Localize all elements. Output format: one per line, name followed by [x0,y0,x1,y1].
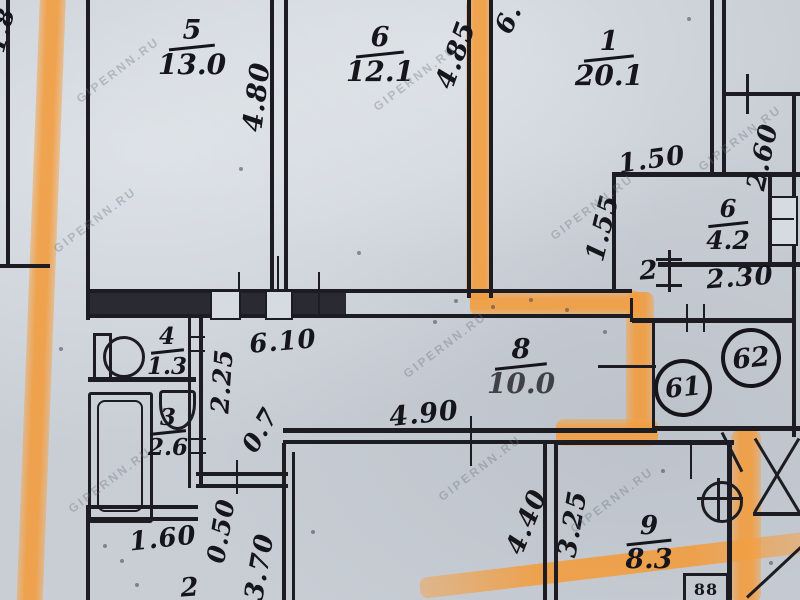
floor-plan: 88 5 13.0 6 12.1 1 20.1 6 4.2 8 10.0 9 8… [0,0,800,600]
wall-segment [0,264,50,268]
dimension-label: 2.30 [705,261,774,296]
highlight-corridor-wall [470,290,640,316]
room-number: 1 [600,28,619,55]
room-area: 8.3 [626,546,673,573]
stove-icon: 88 [683,573,729,600]
wall-segment [558,440,734,445]
wall-segment [489,0,493,298]
window-tick [746,74,749,114]
wall-segment [282,443,286,600]
vent-cross-v [717,478,720,520]
room-label-5: 5 13.0 [158,17,226,79]
dimension-label: 6. [489,0,529,39]
wall-segment [284,0,288,293]
room-number: 8 [512,336,531,363]
room-number: 4 [159,325,175,348]
window-tick [690,445,692,479]
room-area: 1.3 [147,355,187,378]
dimension-tick [470,416,472,466]
room-number: 3 [160,406,176,429]
wall-segment [652,426,800,431]
wall-segment [270,0,274,293]
room-label-9: 9 8.3 [626,513,673,573]
wall-segment [196,484,288,488]
wall-segment [725,92,800,96]
vent-cross-h [697,497,743,500]
wall-segment [652,318,655,430]
room-number: 9 [640,513,658,539]
door-tick [188,438,206,440]
vent-shaft-icon [701,481,743,523]
wall-segment [86,289,632,293]
wall-segment [630,298,633,322]
wall-segment [632,318,795,323]
room-label-8: 8 10.0 [487,336,555,398]
door-tick [190,350,205,352]
room-area: 4.2 [706,228,750,253]
door-tick [686,304,688,332]
watermark-text: GIPERNN.RU [51,184,140,256]
wall-segment [86,0,90,320]
dimension-tick [236,460,238,494]
door-tick [188,452,206,454]
dimension-tick [318,272,320,316]
room-label-4: 4 1.3 [147,325,187,378]
room-area: 10.0 [487,370,555,398]
window-symbol [265,290,293,320]
door-tick [703,304,705,332]
wall-segment [86,314,632,318]
wall-segment [543,443,547,600]
room-number: 5 [183,17,202,44]
window-symbol [770,196,798,246]
watermark-text: GIPERNN.RU [401,309,490,381]
room-label-2-lobby: 2 [638,255,659,286]
apartment-badge-62: 62 [718,325,784,391]
wall-segment [753,512,800,516]
room-area: 13.0 [158,51,226,79]
dimension-label: 1.60 [128,521,198,558]
wall-segment [196,472,288,476]
dimension-line [598,365,656,368]
paper-speckles [0,0,2,2]
door-tick [668,250,671,292]
dimension-label: 3.70 [239,531,280,600]
room-label-2-bottom: 2 [179,572,200,600]
wall-segment [199,318,203,488]
dimension-label: 0.7 [236,403,284,458]
window-tick [772,218,794,220]
room-label-1: 1 20.1 [575,28,643,90]
window-symbol [210,290,241,320]
wall-segment [292,452,295,600]
room-label-6-small: 6 4.2 [706,197,750,253]
room-area: 20.1 [575,62,643,90]
room-label-3: 3 2.6 [148,406,188,459]
apartment-badge-61: 61 [651,356,715,420]
room-number: 6 [720,197,737,221]
dimension-label: 6.10 [248,324,318,360]
room-number: 6 [371,24,390,51]
door-tick [190,336,205,338]
dimension-label: 1.8 [0,5,21,56]
dimension-label: 0.50 [201,497,241,566]
highlight-left-stripe [16,0,66,600]
toilet-bowl-icon [103,336,145,378]
dimension-label: 2.25 [205,348,238,415]
